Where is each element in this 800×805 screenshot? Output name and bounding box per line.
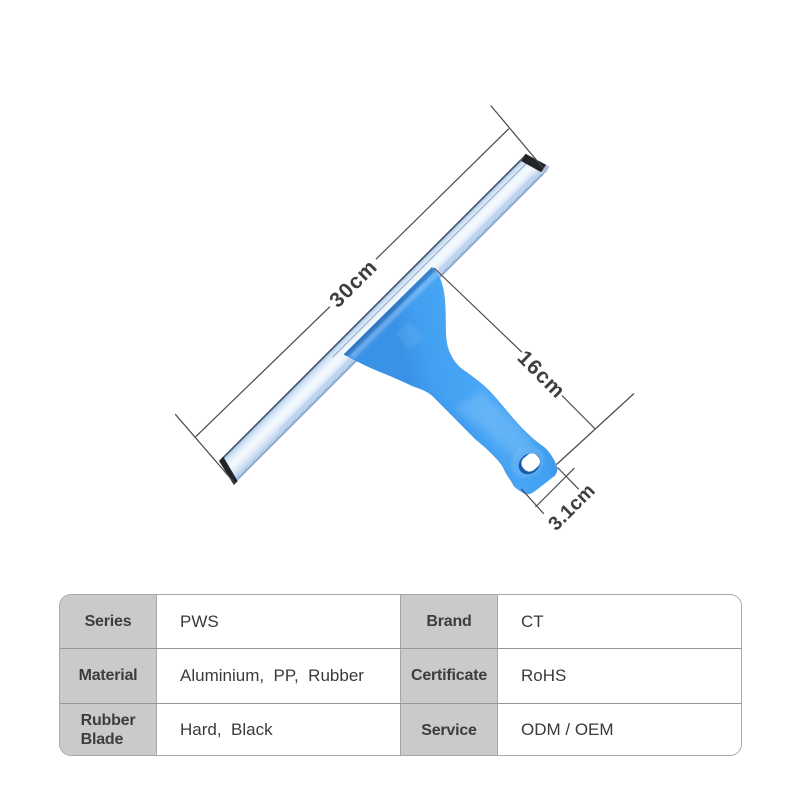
svg-text:16cm: 16cm — [513, 346, 570, 403]
svg-text:3.1cm: 3.1cm — [544, 479, 600, 535]
svg-text:30cm: 30cm — [325, 255, 382, 312]
